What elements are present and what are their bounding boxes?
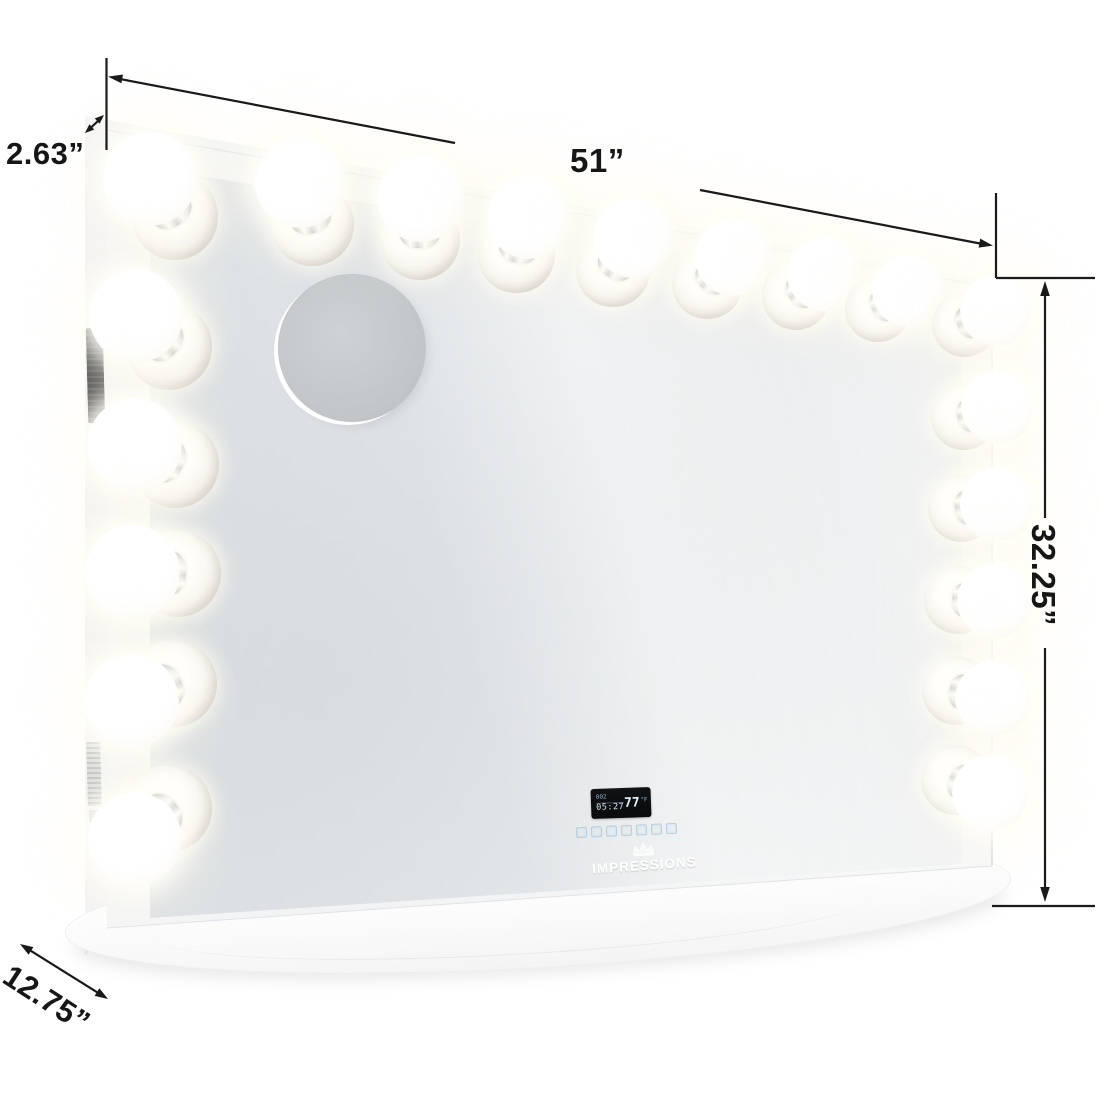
bulb-globe	[255, 138, 345, 228]
bulb-globe	[695, 219, 772, 296]
dimension-label-width: 51”	[570, 142, 625, 180]
bulb-globe	[88, 792, 182, 886]
bulb-globe	[593, 198, 673, 278]
scene: 002 05:27 77 °F IMPRESSIONS	[0, 0, 1100, 1100]
bulb-globe	[960, 275, 1031, 346]
bulb-globe	[955, 661, 1030, 736]
bulb-globe	[487, 176, 570, 259]
dimension-label-height: 32.25”	[1024, 524, 1062, 626]
bulb-globe	[85, 525, 180, 620]
bulb-globe	[957, 564, 1031, 638]
bulb-globe	[87, 398, 182, 493]
bulb-globe	[377, 155, 464, 242]
bulb-globe	[960, 468, 1033, 541]
dimension-label-depth: 2.63”	[6, 136, 84, 172]
bulb-globe	[89, 269, 183, 363]
bulb-globe	[103, 132, 197, 226]
bulb-globe	[952, 755, 1028, 831]
bulb-layer	[0, 0, 1100, 1100]
bulb-globe	[961, 371, 1033, 443]
bulb-globe	[84, 654, 179, 749]
